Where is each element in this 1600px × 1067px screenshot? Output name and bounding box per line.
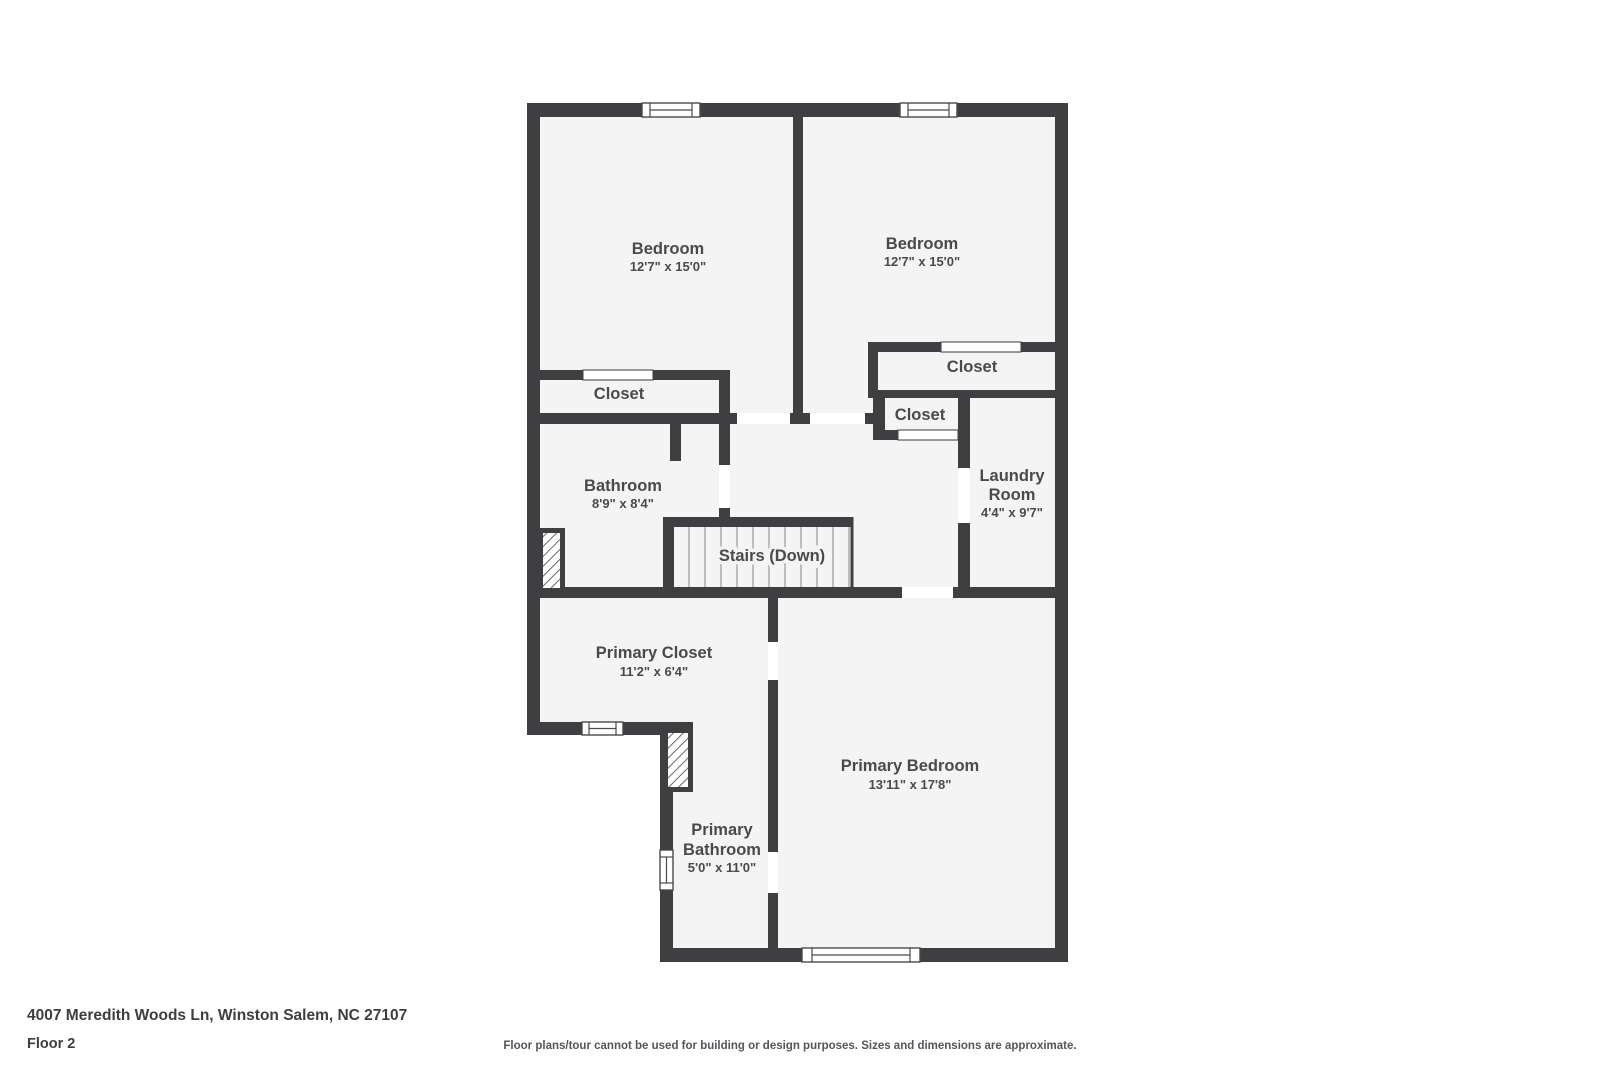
closet-middle-label: Closet — [895, 406, 946, 424]
primary-bathroom-label-line1: Primary — [691, 821, 753, 839]
primary-bedroom-label: Primary Bedroom — [841, 757, 979, 775]
floor-plan-page: Bedroom 12'7" x 15'0" Bedroom 12'7" x 15… — [0, 0, 1600, 1067]
primary-bedroom-dims: 13'11" x 17'8" — [869, 777, 952, 792]
bedroom-right-label: Bedroom — [886, 235, 958, 253]
chimney-hatch-right — [663, 728, 693, 792]
closet-left-label: Closet — [594, 385, 645, 403]
floor-plan-svg: Bedroom 12'7" x 15'0" Bedroom 12'7" x 15… — [0, 0, 1600, 1067]
laundry-label-line1: Laundry — [979, 467, 1045, 485]
bedroom-left-label: Bedroom — [632, 240, 704, 258]
stairs-label: Stairs (Down) — [719, 547, 825, 565]
disclaimer-text: Floor plans/tour cannot be used for buil… — [503, 1040, 1076, 1052]
primary-bathroom-label-line2: Bathroom — [683, 841, 761, 859]
laundry-label-line2: Room — [989, 486, 1036, 504]
primary-closet-dims: 11'2" x 6'4" — [620, 664, 688, 679]
closet-right-label: Closet — [947, 358, 998, 376]
primary-bathroom-dims: 5'0" x 11'0" — [688, 860, 756, 875]
address-text: 4007 Meredith Woods Ln, Winston Salem, N… — [27, 1007, 407, 1024]
bathroom-label: Bathroom — [584, 477, 662, 495]
bedroom-right-dims: 12'7" x 15'0" — [884, 254, 960, 269]
chimney-hatch-left — [538, 528, 565, 593]
primary-closet-label: Primary Closet — [596, 644, 713, 662]
laundry-dims: 4'4" x 9'7" — [981, 505, 1043, 520]
floor-number-text: Floor 2 — [27, 1036, 75, 1052]
bedroom-left-dims: 12'7" x 15'0" — [630, 259, 706, 274]
bathroom-dims: 8'9" x 8'4" — [592, 496, 654, 511]
